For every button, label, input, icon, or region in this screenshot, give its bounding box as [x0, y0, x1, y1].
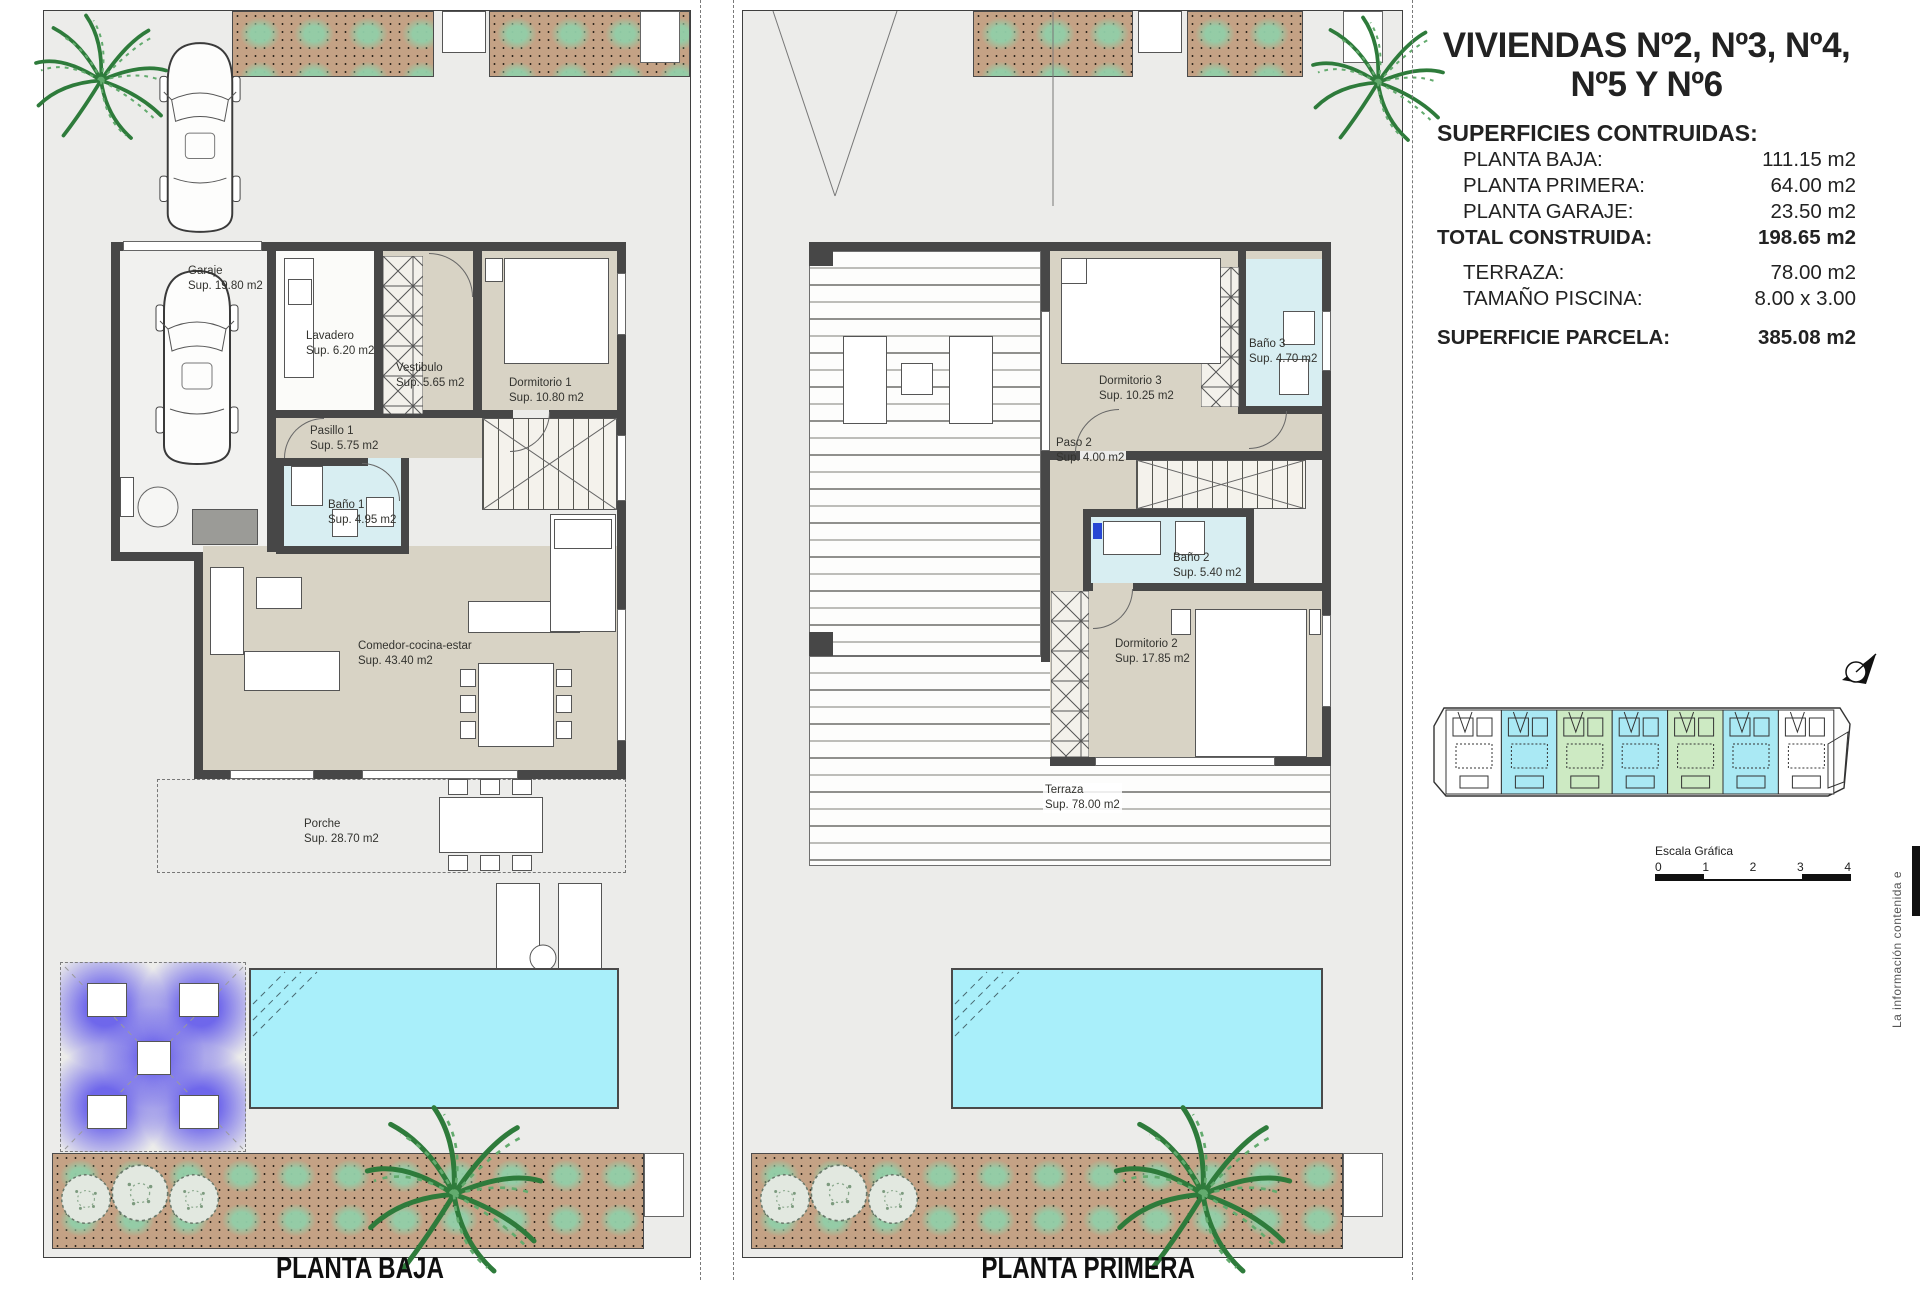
room-name: Pasillo 1: [310, 424, 378, 439]
caption-planta-baja: PLANTA BAJA: [266, 1250, 453, 1286]
surface-label: PLANTA GARAJE:: [1463, 199, 1634, 225]
pillow: [1061, 258, 1087, 284]
scale-bar: [1655, 874, 1851, 881]
window: [1322, 311, 1331, 371]
armchair: [179, 983, 219, 1017]
room-label-dormitorio-2: Dormitorio 2 Sup. 17.85 m2: [1115, 637, 1190, 667]
chair: [460, 669, 476, 687]
gate-opening: [644, 1153, 684, 1217]
room-label-terraza: Terraza Sup. 78.00 m2: [1043, 783, 1122, 813]
room-label-vestibulo: Vestibulo Sup. 5.65 m2: [396, 361, 464, 391]
sun-lounger: [843, 336, 887, 424]
surface-label: TERRAZA:: [1463, 260, 1564, 286]
wall: [1126, 451, 1331, 460]
scale-area: Escala Gráfica 0 1 2 3 4: [1655, 844, 1851, 881]
pergola-deck: [809, 251, 1041, 656]
room-name: Baño 2: [1173, 551, 1241, 566]
wall: [276, 458, 368, 466]
room-sup: Sup. 6.20 m2: [306, 344, 374, 359]
shrub-icon: [807, 1161, 871, 1225]
stairs-cross: [482, 418, 617, 510]
room-name: Dormitorio 2: [1115, 637, 1190, 652]
property-line: [733, 0, 734, 1280]
room-name: Dormitorio 3: [1099, 374, 1174, 389]
dining-table: [478, 663, 554, 747]
room-name: Comedor-cocina-estar: [358, 639, 472, 654]
sheet-title-line2: Nº5 Y Nº6: [1437, 65, 1856, 104]
room-label-bano-2: Baño 2 Sup. 5.40 m2: [1173, 551, 1241, 581]
room-label-pasillo-1: Pasillo 1 Sup. 5.75 m2: [310, 424, 378, 454]
surface-label: TAMAÑO PISCINA:: [1463, 286, 1643, 312]
palm-icon: [26, 3, 176, 153]
room-sup: Sup. 4.00 m2: [1056, 451, 1124, 466]
wall: [1254, 583, 1331, 591]
nightstand: [1309, 609, 1321, 635]
chair: [460, 695, 476, 713]
planter-box: [1138, 11, 1182, 53]
surface-row: PLANTA BAJA: 111.15 m2: [1437, 147, 1856, 173]
plot-planta-primera: Dormitorio 3 Sup. 10.25 m2 Baño 3 Sup. 4…: [742, 10, 1403, 1258]
room-sup: Sup. 5.40 m2: [1173, 566, 1241, 581]
wall: [549, 410, 626, 418]
surface-label: SUPERFICIE PARCELA:: [1437, 325, 1670, 351]
wall: [473, 242, 482, 418]
nightstand: [1171, 609, 1191, 635]
chair: [448, 855, 468, 871]
north-arrow-icon: [1836, 648, 1884, 694]
wall: [1238, 251, 1246, 409]
scale-tick: 4: [1844, 860, 1851, 874]
room-sup: Sup. 10.25 m2: [1099, 389, 1174, 404]
scale-tick: 0: [1655, 860, 1662, 874]
sink: [288, 279, 312, 305]
window: [617, 609, 626, 741]
surface-value: 23.50 m2: [1771, 199, 1856, 225]
room-name: Dormitorio 1: [509, 376, 584, 391]
window: [230, 770, 314, 779]
room-sup: Sup. 28.70 m2: [304, 832, 379, 847]
surface-row-total: TOTAL CONSTRUIDA: 198.65 m2: [1437, 225, 1856, 251]
coffee-table: [256, 577, 302, 609]
wc-highlight: [1093, 523, 1102, 539]
wall: [401, 458, 409, 554]
wall: [1041, 242, 1050, 662]
chair: [512, 855, 532, 871]
sofa: [210, 567, 244, 655]
room-sup: Sup. 10.80 m2: [509, 391, 584, 406]
porch-outline: [157, 779, 626, 873]
room-sup: Sup. 5.75 m2: [310, 439, 378, 454]
room-label-dormitorio-3: Dormitorio 3 Sup. 10.25 m2: [1099, 374, 1174, 404]
room-name: Vestibulo: [396, 361, 464, 376]
wall: [809, 242, 1331, 251]
side-table: [901, 363, 933, 395]
surface-row: TAMAÑO PISCINA: 8.00 x 3.00: [1437, 286, 1856, 312]
sliding-door: [362, 770, 518, 779]
edge-bar: [1912, 846, 1920, 916]
wall: [111, 242, 120, 561]
room-label-garaje: Garaje Sup. 19.80 m2: [188, 264, 263, 294]
shrub-icon: [865, 1171, 921, 1227]
surface-value: 198.65 m2: [1758, 225, 1856, 251]
surface-value: 8.00 x 3.00: [1755, 286, 1856, 312]
pool-steps-dashes: [251, 970, 321, 1040]
surface-row: TERRAZA: 78.00 m2: [1437, 260, 1856, 286]
surface-label: PLANTA BAJA:: [1463, 147, 1603, 173]
scale-label: Escala Gráfica: [1655, 844, 1851, 858]
roof-ridge-lines: [763, 11, 1063, 211]
room-name: Porche: [304, 817, 379, 832]
room-label-comedor: Comedor-cocina-estar Sup. 43.40 m2: [358, 639, 472, 669]
room-label-bano-3: Baño 3 Sup. 4.70 m2: [1249, 337, 1317, 367]
room-label-porche: Porche Sup. 28.70 m2: [304, 817, 379, 847]
shrub-icon: [108, 1161, 172, 1225]
armchair: [87, 1095, 127, 1129]
property-line: [1412, 0, 1413, 1280]
chair: [480, 779, 500, 795]
window: [1041, 311, 1050, 451]
pool: [249, 968, 619, 1109]
closet-xhatch: [1051, 591, 1089, 757]
wall: [194, 552, 203, 779]
surface-row-parcela: SUPERFICIE PARCELA: 385.08 m2: [1437, 325, 1856, 351]
scale-tick: 3: [1797, 860, 1804, 874]
room-label-paso-2: Paso 2 Sup. 4.00 m2: [1056, 436, 1124, 466]
room-name: Baño 3: [1249, 337, 1317, 352]
room-name: Paso 2: [1056, 436, 1124, 451]
room-sup: Sup. 4.95 m2: [328, 513, 396, 528]
scale-tick: 1: [1702, 860, 1709, 874]
room-label-dormitorio-1: Dormitorio 1 Sup. 10.80 m2: [509, 376, 584, 406]
sliding-door: [1095, 757, 1275, 766]
lounge-table: [137, 1041, 171, 1075]
laundry-counter: [284, 258, 314, 378]
info-panel: VIVIENDAS Nº2, Nº3, Nº4, Nº5 Y Nº6 SUPER…: [1437, 26, 1856, 351]
garden-strip: [1187, 11, 1303, 77]
shrub-icon: [58, 1171, 114, 1227]
wall: [1083, 583, 1093, 591]
property-line: [700, 0, 701, 1280]
scale-ticks: 0 1 2 3 4: [1655, 860, 1851, 874]
utility-box: [192, 509, 258, 545]
washbasin: [1175, 521, 1205, 555]
stairs-cross: [1136, 460, 1306, 509]
manhole-icon: [136, 485, 180, 529]
chair: [448, 779, 468, 795]
bed: [504, 258, 609, 364]
window: [1322, 615, 1331, 707]
window: [617, 273, 626, 335]
chair: [556, 669, 572, 687]
chair: [556, 695, 572, 713]
window: [617, 435, 626, 501]
caption-planta-primera: PLANTA PRIMERA: [981, 1250, 1168, 1286]
sofa: [244, 651, 340, 691]
chair: [460, 721, 476, 739]
sun-lounger: [949, 336, 993, 424]
armchair: [179, 1095, 219, 1129]
surface-label: TOTAL CONSTRUIDA:: [1437, 225, 1652, 251]
room-label-bano-1: Baño 1 Sup. 4.95 m2: [328, 498, 396, 528]
wall: [276, 410, 473, 418]
sheet-title-line1: VIVIENDAS Nº2, Nº3, Nº4,: [1437, 26, 1856, 65]
shrub-icon: [757, 1171, 813, 1227]
room-name: Lavadero: [306, 329, 374, 344]
room-name: Terraza: [1043, 783, 1122, 798]
wall: [1246, 517, 1254, 591]
wall: [473, 410, 513, 418]
room-name: Garaje: [188, 264, 263, 279]
shower: [1103, 521, 1161, 555]
sun-lounger: [558, 883, 602, 969]
lounge-area: [60, 962, 246, 1152]
side-note-vertical-text: La información contenida e: [1890, 688, 1904, 1028]
room-sup: Sup. 17.85 m2: [1115, 652, 1190, 667]
surface-row: PLANTA PRIMERA: 64.00 m2: [1437, 173, 1856, 199]
wall: [1083, 509, 1091, 591]
fridge: [554, 519, 612, 549]
garage-door: [123, 241, 262, 251]
garden-strip: [232, 11, 434, 77]
surfaces-heading: SUPERFICIES CONTRUIDAS:: [1437, 120, 1856, 147]
palm-icon: [1303, 5, 1453, 155]
outdoor-table: [439, 797, 543, 853]
surface-value: 64.00 m2: [1771, 173, 1856, 199]
chair: [556, 721, 572, 739]
planter-box: [442, 11, 486, 53]
shelf: [120, 477, 134, 517]
shower: [291, 466, 323, 506]
plot-planta-baja: Garaje Sup. 19.80 m2 Lavadero Sup. 6.20 …: [43, 10, 691, 1258]
wall: [276, 546, 409, 554]
room-sup: Sup. 5.65 m2: [396, 376, 464, 391]
room-sup: Sup. 78.00 m2: [1043, 798, 1122, 813]
site-plan-diagram: [1430, 686, 1854, 806]
room-sup: Sup. 4.70 m2: [1249, 352, 1317, 367]
room-label-lavadero: Lavadero Sup. 6.20 m2: [306, 329, 374, 359]
pool-steps-dashes: [953, 970, 1023, 1040]
wall-pilaster: [809, 632, 833, 656]
gate-opening: [640, 11, 680, 63]
surface-row: PLANTA GARAJE: 23.50 m2: [1437, 199, 1856, 225]
room-sup: Sup. 43.40 m2: [358, 654, 472, 669]
wall: [1133, 583, 1254, 591]
gate-opening: [1343, 1153, 1383, 1217]
room-sup: Sup. 19.80 m2: [188, 279, 263, 294]
nightstand: [485, 258, 503, 282]
wall: [267, 242, 276, 552]
chair: [512, 779, 532, 795]
wall-pilaster: [809, 242, 833, 266]
pool: [951, 968, 1323, 1109]
surface-label: PLANTA PRIMERA:: [1463, 173, 1645, 199]
wall: [374, 242, 383, 418]
room-name: Baño 1: [328, 498, 396, 513]
wall: [1083, 509, 1254, 517]
surface-value: 78.00 m2: [1771, 260, 1856, 286]
armchair: [87, 983, 127, 1017]
chair: [480, 855, 500, 871]
scale-tick: 2: [1750, 860, 1757, 874]
surface-value: 385.08 m2: [1758, 325, 1856, 351]
wall: [276, 458, 284, 554]
surface-value: 111.15 m2: [1762, 147, 1856, 173]
bed: [1195, 609, 1307, 757]
shrub-icon: [166, 1171, 222, 1227]
floor-plan-sheet: { "sheet": { "title_line1": "VIVIENDAS N…: [0, 0, 1920, 1280]
